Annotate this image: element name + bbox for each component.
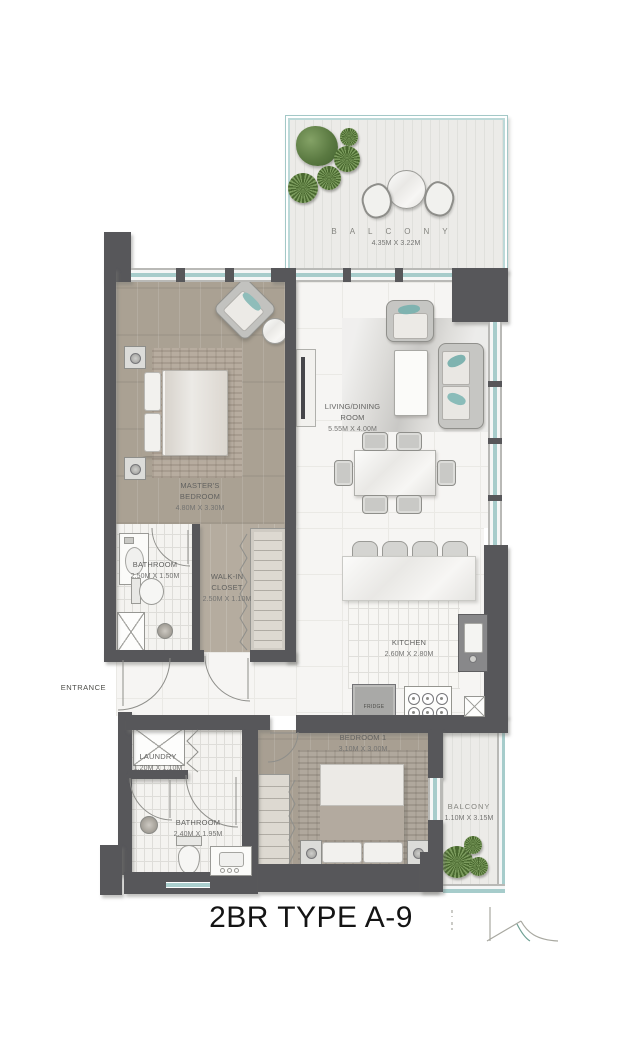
kitchen-counter-icon (342, 556, 476, 601)
sofa-icon (438, 343, 484, 429)
sink-basin (464, 623, 483, 653)
plant-icon (317, 166, 341, 190)
wall-segment (250, 650, 296, 662)
pillow-icon (322, 842, 362, 863)
duvet (320, 764, 404, 806)
balcony-sliding-door (296, 268, 452, 282)
toilet-icon (139, 578, 164, 605)
wall-segment (104, 650, 204, 662)
fridge-label: FRIDGE (364, 704, 385, 710)
room-name: KITCHEN (392, 638, 426, 647)
room-name: BALCONY (448, 802, 491, 811)
plant-icon (340, 128, 358, 146)
room-name: ROOM (340, 413, 364, 422)
dining-chair-icon (437, 460, 456, 486)
vanity-sink-icon (210, 846, 252, 876)
window-mullion (488, 495, 502, 501)
bed-icon (320, 764, 404, 866)
wall-segment (428, 820, 443, 854)
room-label-living-dining: LIVING/DINING ROOM 5.55M X 4.00M (305, 402, 400, 435)
room-name: LIVING/DINING (325, 402, 381, 411)
floor-plan: FRIDGE (0, 0, 630, 1056)
toiletries (124, 537, 134, 544)
room-label-bathroom2: BATHROOM 2.40M X 1.95M (160, 818, 236, 840)
plant-icon (469, 857, 488, 876)
shower-drain-icon (140, 816, 158, 834)
dining-chair-icon (396, 495, 422, 514)
plant-icon (296, 126, 338, 166)
wardrobe-icon (258, 774, 290, 872)
pillow-icon (144, 372, 161, 411)
plan-title: 2BR TYPE A-9 (0, 901, 622, 935)
room-label-balcony-top: BALCONY 4.35M X 3.22M (300, 226, 492, 249)
room-name: CLOSET (211, 583, 242, 592)
kitchen-sink-icon (458, 614, 488, 672)
room-dims: 3.10M X 3.00M (339, 746, 388, 753)
room-dims: 5.55M X 4.00M (328, 426, 377, 433)
plant-icon (464, 836, 482, 854)
room-dims: 4.80M X 3.30M (176, 505, 225, 512)
room-name: BALCONY (331, 227, 460, 236)
dining-table-icon (354, 450, 436, 496)
room-label-bedroom1: BEDROOM 1 3.10M X 3.00M (325, 733, 401, 755)
service-shaft (464, 696, 485, 717)
burner (436, 693, 448, 705)
blanket (320, 806, 404, 840)
service-shaft (117, 612, 145, 652)
wall-segment (296, 715, 508, 733)
outdoor-table-icon (387, 170, 426, 209)
nightstand-icon (124, 346, 146, 369)
wall-segment (100, 845, 122, 895)
wall-segment (104, 268, 116, 658)
toiletries (220, 868, 225, 873)
room-label-laundry: LAUNDRY 1.20M X 1.10M (124, 752, 192, 774)
window-mullion (395, 268, 403, 282)
room-name: MASTER'S (180, 481, 219, 490)
room-dims: 2.60M X 2.80M (385, 651, 434, 658)
room-dims: 1.10M X 3.15M (445, 815, 494, 822)
window (488, 322, 502, 548)
duvet (162, 370, 228, 456)
nightstand-icon (300, 840, 322, 866)
plant-icon (288, 173, 318, 203)
room-name: BATHROOM (176, 818, 220, 827)
dining-chair-icon (334, 460, 353, 486)
window-mullion (488, 381, 502, 387)
wall-segment (126, 715, 270, 730)
plant-icon (334, 146, 360, 172)
window-mullion (225, 268, 234, 282)
room-dims: 2.50M X 1.50M (131, 573, 180, 580)
shower-drain-icon (157, 623, 173, 639)
room-name: BEDROOM 1 (340, 733, 387, 742)
pillow-icon (363, 842, 403, 863)
pillow-icon (144, 413, 161, 452)
faucet (469, 655, 477, 663)
room-label-masters-bedroom: MASTER'S BEDROOM 4.80M X 3.30M (160, 481, 240, 514)
room-dims: 2.40M X 1.95M (174, 831, 223, 838)
window (131, 268, 271, 282)
burner (422, 693, 434, 705)
room-label-walkin-closet: WALK-IN CLOSET 2.50M X 1.10M (197, 572, 257, 605)
room-dims: 4.35M X 3.22M (372, 240, 421, 247)
room-label-balcony-bottom: BALCONY 1.10M X 3.15M (438, 802, 500, 824)
dining-chair-icon (362, 495, 388, 514)
burner (408, 693, 420, 705)
wall-segment (452, 268, 508, 322)
wall-segment (258, 864, 438, 892)
bed-icon (142, 368, 228, 456)
sink-basin (219, 852, 244, 867)
wall-segment (428, 730, 443, 778)
window-mullion (343, 268, 351, 282)
window-mullion (488, 438, 502, 444)
entrance-label: ENTRANCE (46, 683, 106, 694)
toiletries (234, 868, 239, 873)
toiletries (227, 868, 232, 873)
room-name: BEDROOM (180, 492, 220, 501)
window-mullion (176, 268, 185, 282)
wall-segment (271, 268, 296, 282)
room-dims: 2.50M X 1.10M (203, 596, 252, 603)
room-dims: 1.20M X 1.10M (134, 765, 183, 772)
room-label-bathroom1: BATHROOM 2.50M X 1.50M (118, 560, 192, 582)
room-name: BATHROOM (133, 560, 177, 569)
wall-segment (285, 282, 296, 524)
wall-segment (420, 852, 443, 892)
room-name: WALK-IN (211, 572, 243, 581)
room-label-kitchen: KITCHEN 2.60M X 2.80M (365, 638, 453, 660)
nightstand-icon (124, 457, 146, 480)
armchair-seat (393, 313, 428, 339)
armchair-icon (386, 300, 434, 342)
window (166, 882, 210, 888)
room-name: LAUNDRY (139, 752, 176, 761)
wall-segment (285, 524, 296, 662)
balcony-bottom-railing (443, 884, 505, 893)
entrance-text: ENTRANCE (61, 683, 106, 692)
